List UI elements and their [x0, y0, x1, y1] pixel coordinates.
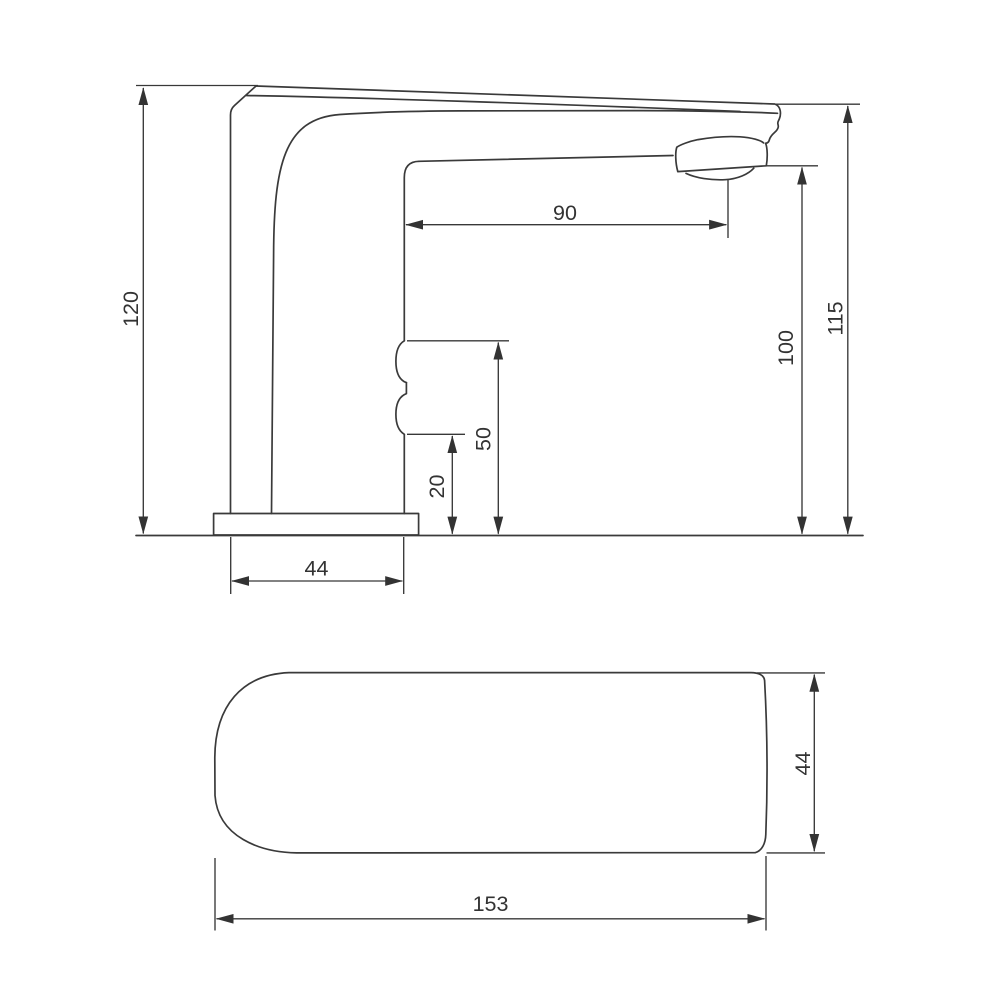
svg-text:44: 44	[305, 557, 329, 581]
svg-text:90: 90	[553, 201, 577, 225]
svg-text:20: 20	[425, 475, 449, 499]
svg-text:100: 100	[774, 330, 798, 366]
svg-text:115: 115	[824, 301, 848, 335]
svg-text:153: 153	[473, 892, 509, 916]
svg-text:50: 50	[472, 427, 496, 451]
svg-text:120: 120	[119, 291, 143, 327]
svg-text:44: 44	[791, 752, 815, 776]
